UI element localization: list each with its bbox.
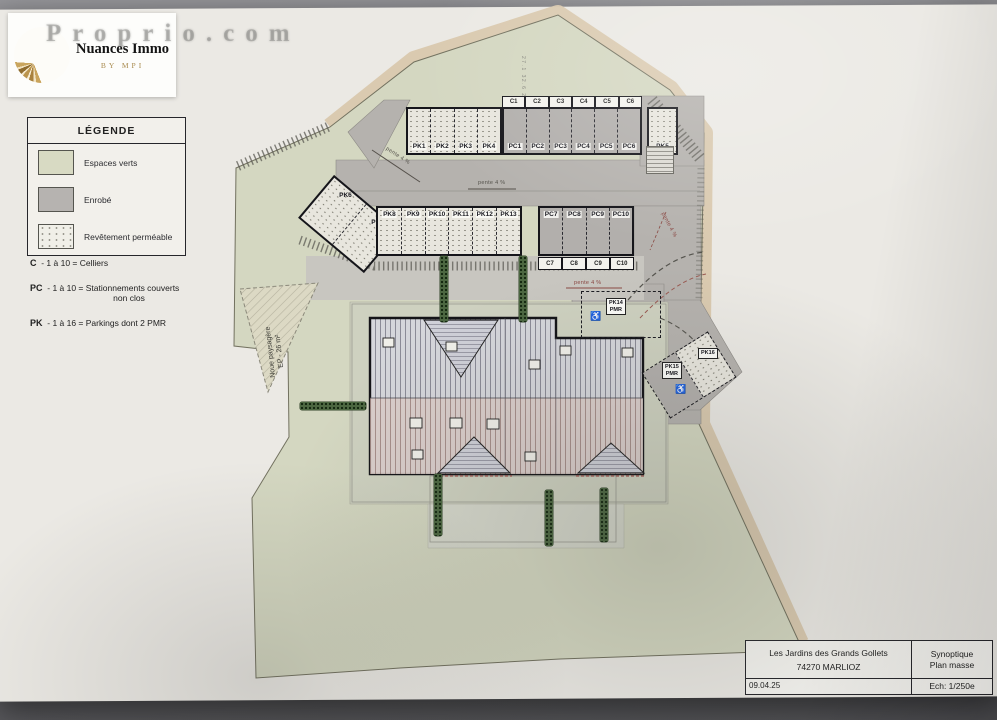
parking-stall-label: PK8	[382, 211, 397, 218]
project-city: 74270 MARLIOZ	[746, 662, 911, 672]
parking-stall-label: PK10	[428, 211, 446, 218]
code-desc: - 1 à 10 = Stationnements couverts	[47, 283, 179, 293]
hedge-strip	[434, 474, 442, 536]
cellar-box: C7	[538, 257, 562, 270]
slope-annotation: pente 4 %	[478, 180, 505, 186]
title-block-left: Les Jardins des Grands Gollets 74270 MAR…	[746, 641, 912, 694]
parking-stall: PK2	[430, 109, 453, 153]
covered-stall-label: PC10	[612, 211, 630, 218]
legend-label: Espaces verts	[84, 158, 137, 168]
parking-stall: PK3	[454, 109, 477, 153]
covered-stall-label: PC9	[590, 211, 605, 218]
hedge-strip	[600, 488, 608, 542]
covered-parking-strip-pc1-6: PC1PC2PC3PC4PC5PC6	[502, 107, 642, 155]
covered-stall-label: PC7	[544, 211, 559, 218]
cellar-box: C1	[502, 96, 525, 108]
parking-stall: PK1	[408, 109, 430, 153]
code-desc2: non clos	[30, 293, 200, 304]
slope-annotation: pente 4 %	[574, 280, 601, 286]
parking-stall: PK9	[401, 208, 425, 254]
code-desc: - 1 à 16 = Parkings dont 2 PMR	[47, 318, 166, 328]
parking-stall: PK4	[477, 109, 500, 153]
parking-stall: PK13	[496, 208, 520, 254]
parking-stall-label: PK3	[458, 143, 473, 150]
hedge-strip	[519, 256, 527, 322]
grey-swatch	[38, 187, 74, 212]
covered-stall-label: PC2	[530, 143, 545, 150]
legend-row: Revêtement perméable	[28, 218, 185, 255]
pmr-suffix: PMR	[666, 371, 678, 377]
cellar-row-c1-6: C1C2C3C4C5C6	[502, 96, 642, 108]
noue-line2: EP - 26 m²	[274, 334, 284, 368]
covered-stall-label: PC3	[553, 143, 568, 150]
code-desc: - 1 à 10 = Celliers	[41, 258, 108, 268]
covered-stall: PC5	[594, 109, 617, 153]
parking-stall-label: PK11	[452, 211, 470, 218]
stairs	[646, 146, 674, 174]
hedge-strip	[440, 256, 448, 322]
covered-stall-label: PC8	[567, 211, 582, 218]
covered-stall: PC8	[562, 208, 585, 254]
covered-stall-label: PC1	[508, 143, 523, 150]
code: C	[30, 258, 37, 268]
project-title-cell: Les Jardins des Grands Gollets 74270 MAR…	[746, 641, 911, 679]
photo-of-site-plan: PK1PK2PK3PK4 PC1PC2PC3PC4PC5PC6 C1C2C3C4…	[0, 0, 997, 720]
parking-stall-label: PK9	[406, 211, 421, 218]
legend-label: Enrobé	[84, 195, 111, 205]
cellar-row-c7-10: C7C8C9C10	[538, 257, 634, 270]
covered-stall-label: PC4	[576, 143, 591, 150]
parking-stall-label: PK12	[476, 211, 494, 218]
site-watermark: Proprio.com	[46, 20, 301, 48]
wheelchair-icon: ♿	[590, 312, 601, 321]
parking-stall: PK10	[425, 208, 449, 254]
legend-row: Enrobé	[28, 181, 185, 218]
document-type-1: Synoptique	[912, 649, 992, 660]
cellar-box: C8	[562, 257, 586, 270]
covered-stall: PC7	[540, 208, 562, 254]
code-row: PC - 1 à 10 = Stationnements couverts no…	[30, 283, 200, 304]
legend-title: LÉGENDE	[28, 118, 185, 144]
stipple-swatch	[38, 224, 74, 249]
pmr-code: PK14	[609, 300, 623, 306]
agency-tagline: BY MPI	[76, 61, 169, 70]
wheelchair-icon: ♿	[675, 385, 686, 394]
parking-label-pk16: PK16	[698, 348, 718, 359]
parking-strip-pk8-13: PK8PK9PK10PK11PK12PK13	[376, 206, 522, 256]
hedge-strip	[300, 402, 366, 410]
parking-stall: PK12	[472, 208, 496, 254]
parking-stall-label: PK2	[435, 143, 450, 150]
covered-stall-label: PC5	[599, 143, 614, 150]
document-type-2: Plan masse	[912, 660, 992, 671]
parking-stall-label: PK4	[482, 143, 497, 150]
pmr-code: PK15	[665, 364, 679, 370]
covered-stall: PC10	[609, 208, 632, 254]
covered-stall: PC4	[571, 109, 594, 153]
parking-stall-label: PK6	[338, 192, 353, 199]
parking-stall: PK11	[448, 208, 472, 254]
legend-row: Espaces verts	[28, 144, 185, 181]
cellar-box: C2	[525, 96, 548, 108]
covered-stall-label: PC6	[622, 143, 637, 150]
green-swatch	[38, 150, 74, 175]
parking-stall-label: PK13	[499, 211, 517, 218]
covered-stall: PC6	[617, 109, 640, 153]
cellar-box: C4	[572, 96, 595, 108]
covered-stall: PC9	[586, 208, 609, 254]
plan-scale: Ech: 1/250e	[912, 679, 992, 694]
cellar-box: C9	[586, 257, 610, 270]
parking-stall: PK8	[378, 208, 401, 254]
cellar-box: C10	[610, 257, 634, 270]
title-block: Les Jardins des Grands Gollets 74270 MAR…	[745, 640, 993, 695]
plan-date: 09.04.25	[746, 679, 911, 694]
title-block-right: Synoptique Plan masse Ech: 1/250e	[912, 641, 992, 694]
legend-codes: C - 1 à 10 = Celliers PC - 1 à 10 = Stat…	[30, 258, 200, 342]
hedge-strip	[545, 490, 553, 546]
covered-stall: PC2	[526, 109, 549, 153]
cellar-box: C6	[619, 96, 642, 108]
parking-stall-label: PK1	[412, 143, 427, 150]
project-name: Les Jardins des Grands Gollets	[746, 648, 911, 658]
parking-strip-pk1-4: PK1PK2PK3PK4	[406, 107, 502, 155]
code: PC	[30, 283, 43, 293]
pmr-label-pk14: PK14 PMR	[606, 298, 626, 315]
document-type-cell: Synoptique Plan masse	[912, 641, 992, 679]
covered-stall: PC1	[504, 109, 526, 153]
covered-parking-strip-pc7-10: PC7PC8PC9PC10	[538, 206, 634, 256]
cellar-box: C3	[549, 96, 572, 108]
pmr-label-pk15: PK15 PMR	[662, 362, 682, 379]
dimension-note: 27.1 32.6 26	[520, 56, 526, 102]
lower-patio	[428, 504, 624, 548]
pmr-suffix: PMR	[610, 307, 622, 313]
legend-label: Revêtement perméable	[84, 232, 172, 242]
cellar-box: C5	[595, 96, 618, 108]
code-row: C - 1 à 10 = Celliers	[30, 258, 200, 269]
legend-box: LÉGENDE Espaces verts Enrobé Revêtement …	[27, 117, 186, 256]
code: PK	[30, 318, 43, 328]
covered-stall: PC3	[549, 109, 572, 153]
code-row: PK - 1 à 16 = Parkings dont 2 PMR	[30, 318, 200, 329]
